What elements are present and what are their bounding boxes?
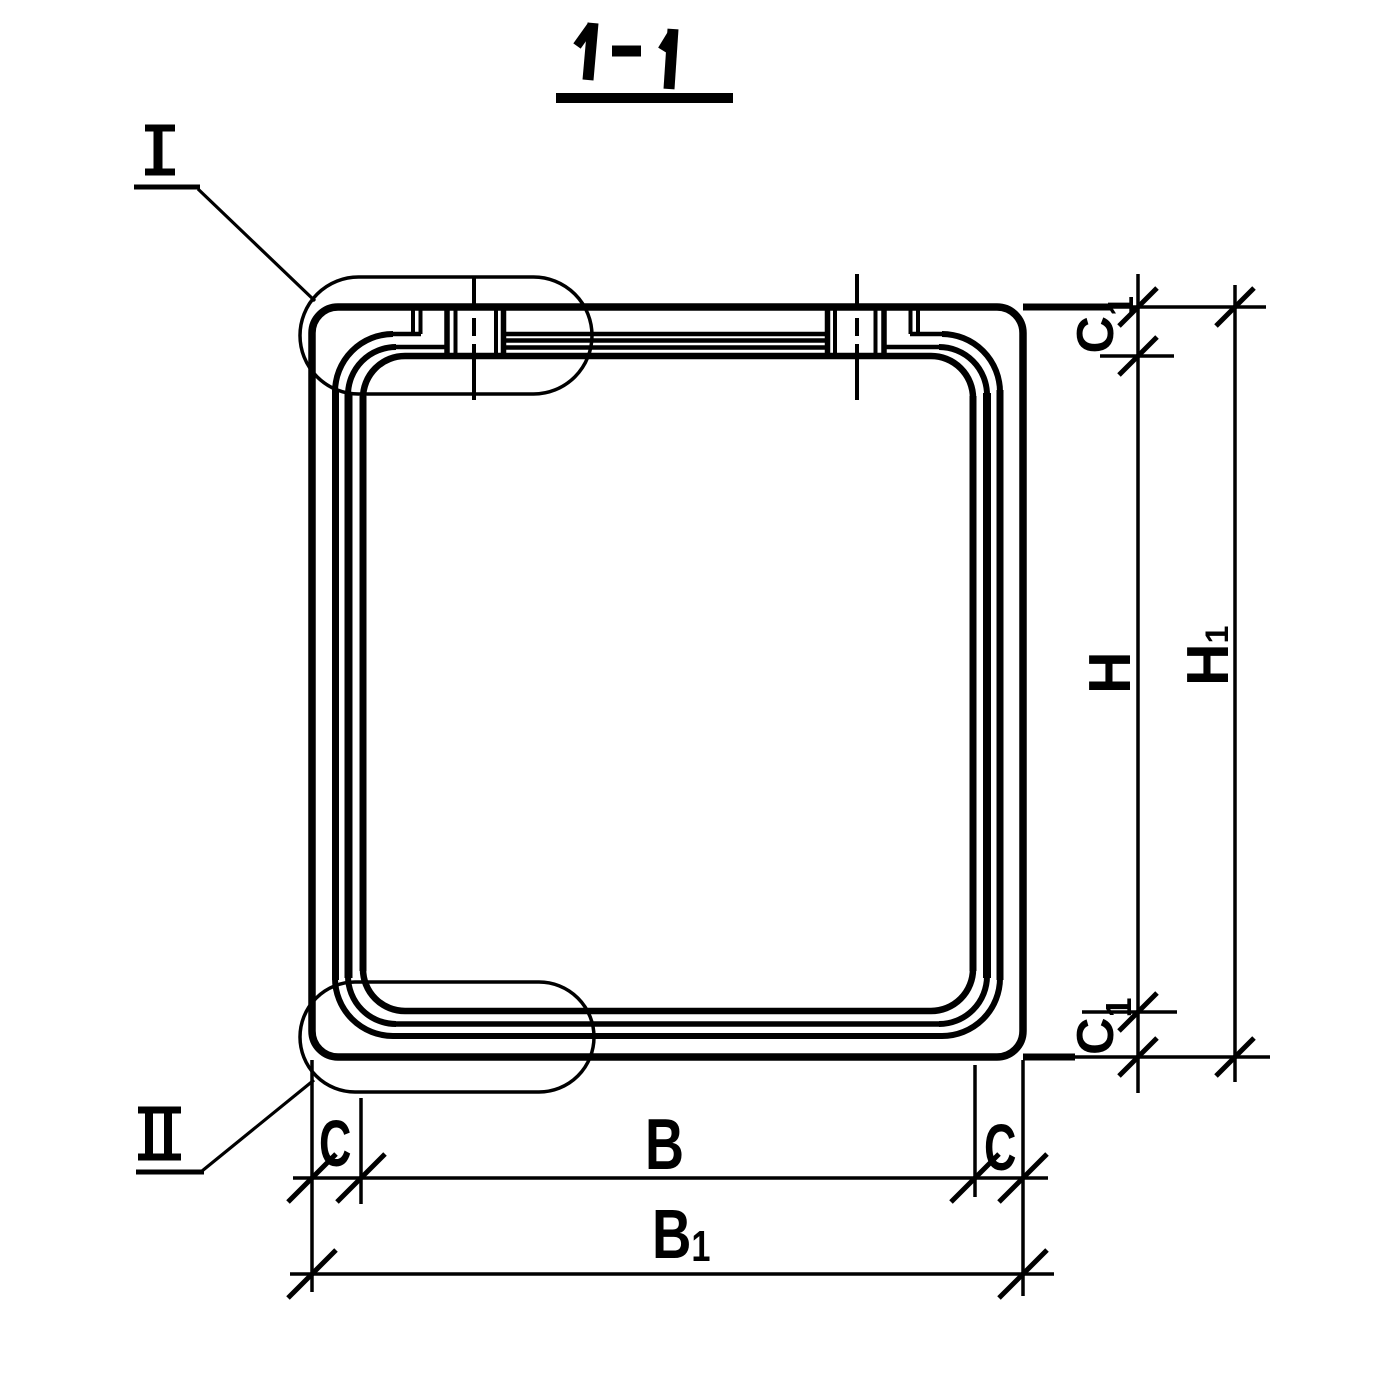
svg-text:B: B: [645, 1105, 684, 1185]
svg-text:H1: H1: [1175, 626, 1241, 686]
svg-text:C: C: [319, 1106, 351, 1180]
svg-text:C1: C1: [1067, 997, 1139, 1055]
svg-text:C: C: [984, 1110, 1016, 1184]
svg-text:B1: B1: [652, 1196, 711, 1274]
svg-text:H: H: [1077, 651, 1143, 694]
